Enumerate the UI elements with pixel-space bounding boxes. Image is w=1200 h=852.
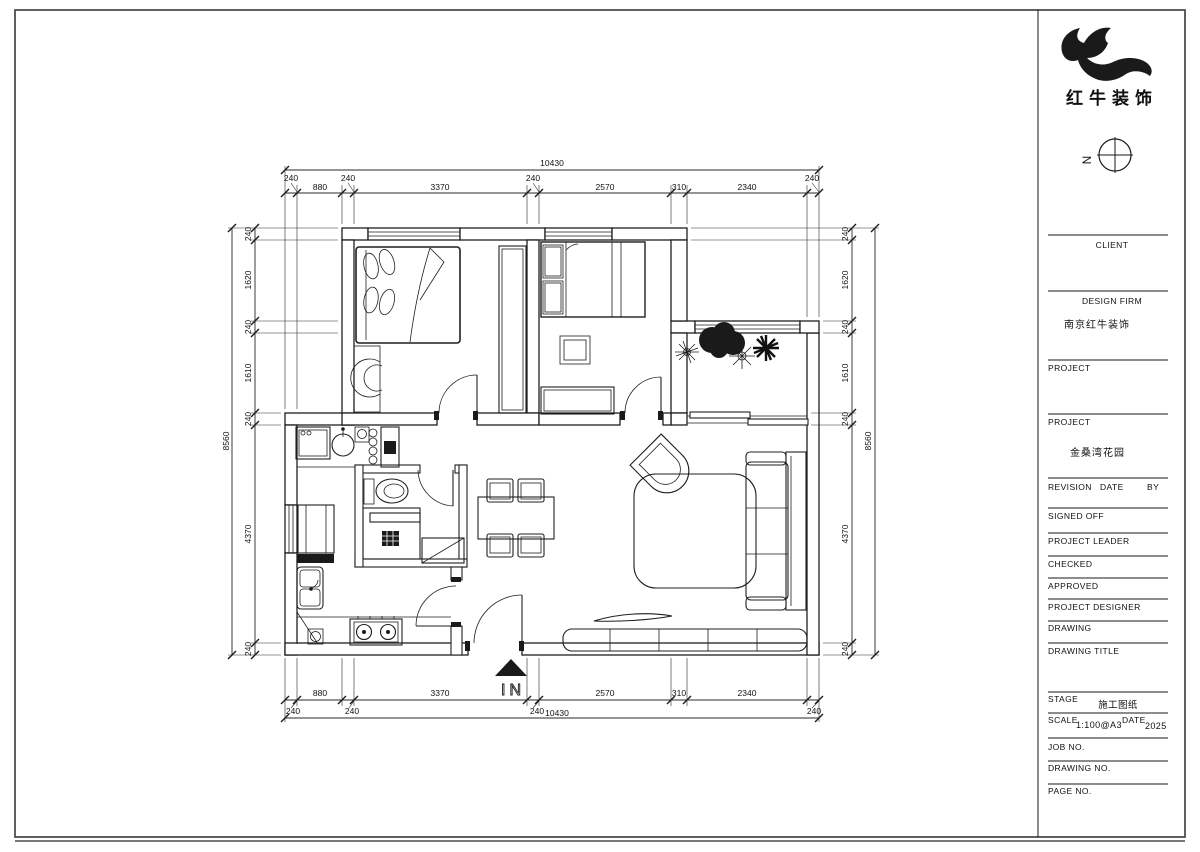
company-name: 红牛装饰 <box>1066 88 1158 108</box>
basin <box>332 434 354 456</box>
dim-label: 1620 <box>840 270 850 289</box>
dim-label: 240 <box>530 706 544 716</box>
dim-label: 2340 <box>738 182 757 192</box>
dim-label: 3370 <box>431 182 450 192</box>
date-label: DATE <box>1122 715 1146 725</box>
toilet <box>364 479 374 504</box>
drawing-sheet: 红牛装饰 N <box>0 0 1200 852</box>
dim-label: 10430 <box>540 158 564 168</box>
dim-label: 240 <box>807 706 821 716</box>
scale-value: 1:100@A3 <box>1076 720 1122 730</box>
dining-chair <box>487 534 513 557</box>
floor-drain <box>382 531 399 546</box>
dim-label: 240 <box>840 642 850 656</box>
dim-label: 880 <box>313 688 327 698</box>
project-label: PROJECT <box>1048 417 1090 427</box>
date-label: DATE <box>1100 482 1124 492</box>
rug <box>634 474 756 588</box>
scale-label: SCALE <box>1048 715 1078 725</box>
dining-chair <box>518 534 544 557</box>
stove <box>350 619 402 645</box>
bull-logo-icon <box>1061 28 1151 81</box>
client-label: CLIENT <box>1096 240 1129 250</box>
project-leader-label: PROJECT LEADER <box>1048 536 1130 546</box>
sofa <box>746 452 806 610</box>
checked-label: CHECKED <box>1048 559 1092 569</box>
project-value: 金桑湾花园 <box>1070 446 1125 459</box>
design-firm-label: DESIGN FIRM <box>1082 296 1142 306</box>
dim-label: 4370 <box>840 524 850 543</box>
dim-label: 240 <box>526 173 540 183</box>
second-bedroom <box>541 242 645 414</box>
wardrobe <box>499 246 526 413</box>
master-bedroom <box>351 246 526 413</box>
dim-label: 240 <box>345 706 359 716</box>
dim-label: 880 <box>313 182 327 192</box>
dining-chair <box>518 479 544 502</box>
dim-label: 1610 <box>840 363 850 382</box>
north-arrow-icon: N <box>1080 137 1133 173</box>
dim-label: 240 <box>243 412 253 426</box>
armchair <box>630 434 698 502</box>
title-block: CLIENT DESIGN FIRM 南京红牛装饰 PROJECT PROJEC… <box>1048 235 1168 796</box>
dresser <box>541 387 614 414</box>
dim-label: 240 <box>243 227 253 241</box>
drawing-no-label: DRAWING NO. <box>1048 763 1111 773</box>
entrance-label: IN <box>501 682 525 699</box>
chair <box>351 359 382 397</box>
floor-plan-drawing: 红牛装饰 N <box>0 0 1200 852</box>
design-firm-value: 南京红牛装饰 <box>1064 318 1130 331</box>
dim-label: 240 <box>805 173 819 183</box>
dim-label: 10430 <box>545 708 569 718</box>
dim-label: 240 <box>341 173 355 183</box>
entry-arrow-icon <box>495 659 527 676</box>
dim-label: 3370 <box>431 688 450 698</box>
dim-label: 1620 <box>243 270 253 289</box>
dim-label: 2570 <box>596 688 615 698</box>
bathroom <box>363 479 464 563</box>
drawing-title-label: DRAWING TITLE <box>1048 646 1119 656</box>
approved-label: APPROVED <box>1048 581 1098 591</box>
dim-label: 1610 <box>243 363 253 382</box>
kitchen <box>297 505 451 645</box>
stage-value: 施工图纸 <box>1098 699 1138 711</box>
revision-label: REVISION <box>1048 482 1092 492</box>
tv-bar <box>594 614 672 622</box>
nightstand <box>354 346 380 412</box>
north-label: N <box>1080 156 1094 165</box>
vanity-strip <box>296 427 399 467</box>
dim-label: 8560 <box>863 431 873 450</box>
dining-table <box>478 497 554 539</box>
drawing-label: DRAWING <box>1048 623 1092 633</box>
dim-label: 310 <box>672 688 686 698</box>
entrance-marker: IN <box>495 659 527 699</box>
dining-chair <box>487 479 513 502</box>
fridge <box>298 505 334 553</box>
date-value: 2025 <box>1145 721 1167 731</box>
dim-label: 240 <box>243 642 253 656</box>
dim-label: 310 <box>672 182 686 192</box>
dim-label: 2570 <box>596 182 615 192</box>
dining-area <box>478 479 554 557</box>
job-no-label: JOB NO. <box>1048 742 1085 752</box>
dim-label: 240 <box>840 227 850 241</box>
dim-label: 2340 <box>738 688 757 698</box>
dim-label: 240 <box>286 706 300 716</box>
company-logo: 红牛装饰 <box>1061 28 1158 108</box>
dim-label: 8560 <box>221 431 231 450</box>
dim-label: 240 <box>840 412 850 426</box>
stage-label: STAGE <box>1048 694 1078 704</box>
page-no-label: PAGE NO. <box>1048 786 1092 796</box>
project-designer-label: PROJECT DESIGNER <box>1048 602 1141 612</box>
living-room <box>563 434 807 651</box>
dim-label: 240 <box>243 320 253 334</box>
project-label: PROJECT <box>1048 363 1090 373</box>
dim-label: 240 <box>840 320 850 334</box>
by-label: BY <box>1147 482 1159 492</box>
dim-label: 240 <box>284 173 298 183</box>
walls <box>285 228 819 655</box>
signed-off-label: SIGNED OFF <box>1048 511 1104 521</box>
dim-label: 4370 <box>243 524 253 543</box>
